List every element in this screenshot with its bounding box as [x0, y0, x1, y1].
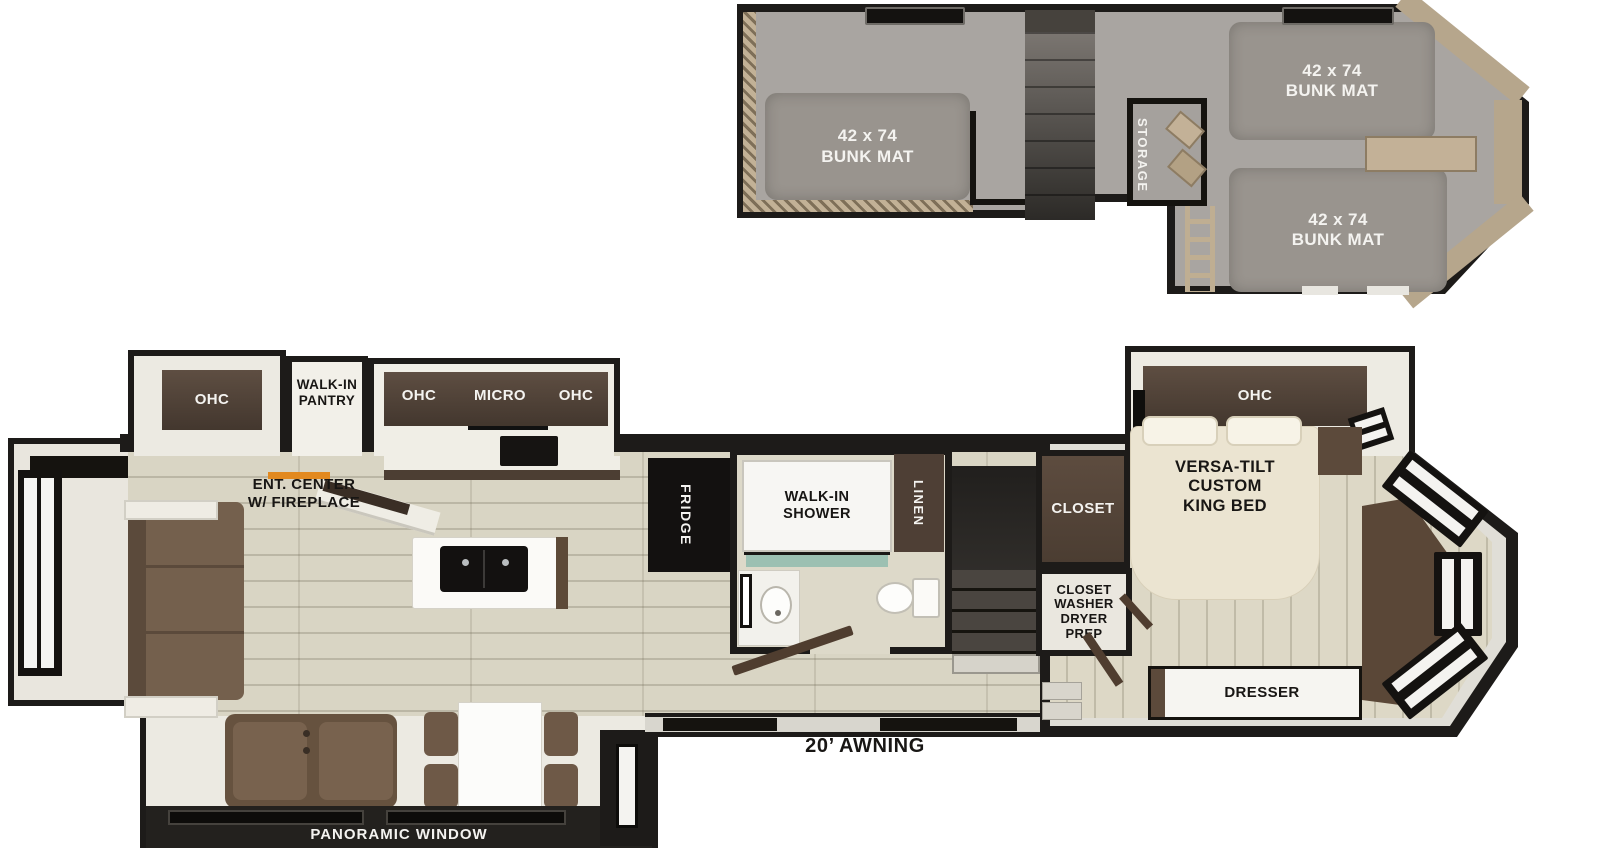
- sink-drain-right: [502, 559, 509, 566]
- panoramic-window-wall: PANORAMIC WINDOW: [146, 806, 652, 848]
- sofa: [128, 502, 244, 700]
- dresser-end-panel: [1151, 669, 1165, 717]
- bunk-ladder: [1185, 206, 1215, 292]
- loft-front-cap-trim-right: [1494, 100, 1522, 204]
- bunk-mat-left: 42 x 74 BUNK MAT: [765, 93, 970, 200]
- window-pane: [1461, 559, 1473, 629]
- panoramic-window-label: PANORAMIC WINDOW: [146, 824, 652, 846]
- sofa-cushion-seam-2: [146, 631, 244, 634]
- stairs-landing: [952, 654, 1040, 674]
- theater-seat-left: [233, 722, 307, 800]
- dresser-label: DRESSER: [1165, 669, 1359, 717]
- loft-rail-bottom: [743, 200, 973, 212]
- toilet-tank: [912, 578, 940, 618]
- roof-vent-right: [1282, 7, 1394, 25]
- theater-seating: [225, 714, 397, 808]
- island-end-panel: [556, 537, 568, 609]
- dinette-chair-1: [424, 712, 458, 756]
- linen-cabinet: LINEN: [894, 454, 944, 552]
- range-hood: [468, 426, 548, 430]
- loft-floorplan: 42 x 74 BUNK MAT STORAGE 42 x 74 BUNK MA…: [737, 2, 1532, 298]
- loft-console-table: [1365, 136, 1477, 172]
- panoramic-window-glass-1: [168, 810, 364, 825]
- bottom-window-2: [880, 718, 1017, 731]
- window-pane: [1359, 428, 1388, 444]
- loft-storage-room: STORAGE: [1127, 98, 1207, 206]
- stairs-treads: [952, 570, 1040, 654]
- dinette-chair-2: [424, 764, 458, 808]
- toilet-bowl: [876, 582, 914, 614]
- bottom-window-1: [663, 718, 777, 731]
- bedroom-step-1: [1042, 682, 1082, 700]
- walk-in-shower: WALK-IN SHOWER: [742, 460, 892, 552]
- fridge: FRIDGE: [648, 458, 730, 572]
- shower-tile-strip: [746, 555, 888, 567]
- living-ohc-cabinet: OHC: [162, 370, 262, 430]
- kitchen-micro-label: MICRO: [462, 386, 538, 406]
- dresser: DRESSER: [1148, 666, 1362, 720]
- cupholder-1: [303, 730, 310, 737]
- pantry-label: WALK-IN PANTRY: [288, 372, 366, 414]
- pillow-right: [1226, 416, 1302, 446]
- kitchen-ohc-left-label: OHC: [388, 386, 450, 406]
- rv-floorplan-diagram: 42 x 74 BUNK MAT STORAGE 42 x 74 BUNK MA…: [0, 0, 1600, 849]
- storage-shelf-upper: [1165, 111, 1205, 150]
- washer-dryer-closet: CLOSET WASHER DRYER PREP: [1036, 568, 1132, 656]
- fridge-label: FRIDGE: [678, 468, 694, 562]
- bedroom-closet: CLOSET: [1036, 450, 1130, 568]
- kitchen-ohc-right-label: OHC: [548, 386, 604, 406]
- bunk-mat-top-right: 42 x 74 BUNK MAT: [1229, 22, 1435, 140]
- ent-center-label: ENT. CENTER W/ FIREPLACE: [238, 476, 370, 512]
- sofa-back: [128, 502, 146, 700]
- roof-vent-left: [865, 7, 965, 25]
- loft-wall-notch-1: [1302, 286, 1338, 295]
- loft-wall-notch-2: [1367, 286, 1409, 295]
- rear-window-pane-1: [24, 478, 37, 668]
- dinette-chair-4: [544, 764, 578, 808]
- storage-label: STORAGE: [1135, 110, 1150, 200]
- cupholder-2: [303, 747, 310, 754]
- sofa-cushion-seam-1: [146, 565, 244, 568]
- kitchen-counter-edge: [384, 470, 620, 480]
- vanity-cabinet: [740, 574, 752, 628]
- sofa-end-table-top: [124, 500, 218, 520]
- main-floorplan: OHC WALK-IN PANTRY OHC MICRO OHC ENT. CE…: [0, 330, 1540, 849]
- sink-divider: [483, 550, 485, 588]
- cooktop: [500, 436, 558, 466]
- bunk-mat-bottom-right: 42 x 74 BUNK MAT: [1229, 168, 1447, 292]
- awning-label: 20’ AWNING: [715, 734, 1015, 760]
- slide-side-window: [616, 744, 638, 828]
- linen-label: LINEN: [911, 462, 926, 544]
- sofa-end-table-bottom: [124, 696, 218, 718]
- sink-drain-left: [462, 559, 469, 566]
- bathroom-sink: [760, 586, 792, 624]
- theater-seat-right: [319, 722, 393, 800]
- dinette-chair-3: [544, 712, 578, 756]
- sink-drain: [775, 610, 781, 616]
- window-pane: [1442, 559, 1454, 629]
- pillow-left: [1142, 416, 1218, 446]
- king-bed-label: VERSA-TILT CUSTOM KING BED: [1130, 454, 1320, 520]
- dinette-table: [458, 702, 542, 820]
- island-double-sink: [440, 546, 528, 592]
- loft-rail-left: [743, 12, 756, 212]
- storage-shelf-lower: [1167, 149, 1207, 188]
- panoramic-window-glass-2: [386, 810, 566, 825]
- panoramic-slide-side-wall: [600, 730, 656, 846]
- rear-side-window: [18, 470, 62, 676]
- rear-window-pane-2: [41, 478, 54, 668]
- bedroom-step-2: [1042, 702, 1082, 720]
- loft-stair-treads: [1025, 32, 1095, 220]
- nightstand: [1318, 427, 1362, 475]
